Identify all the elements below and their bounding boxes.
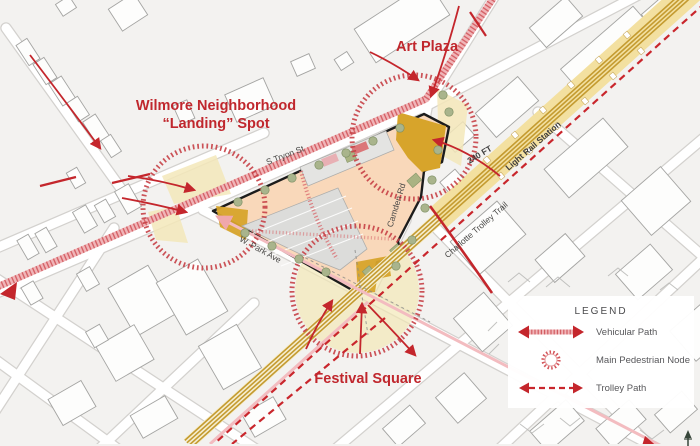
legend-item-vehicular: Vehicular Path: [516, 319, 694, 345]
legend-title: LEGEND: [508, 306, 694, 317]
legend-label-pedestrian-node: Main Pedestrian Node: [596, 355, 690, 366]
legend: LEGEND Vehicular Path Main Pedestrian No…: [508, 296, 694, 408]
trolley-path-icon: [516, 378, 586, 398]
legend-label-vehicular: Vehicular Path: [596, 327, 657, 338]
legend-label-trolley: Trolley Path: [596, 383, 646, 394]
label-wilmore-line2: “Landing” Spot: [162, 116, 269, 132]
label-art-plaza: Art Plaza: [396, 39, 459, 55]
legend-item-pedestrian-node: Main Pedestrian Node: [516, 347, 694, 373]
legend-item-trolley: Trolley Path: [516, 375, 694, 401]
label-festival-square: Festival Square: [314, 371, 421, 387]
vehicular-path-icon: [516, 322, 586, 342]
pedestrian-node-icon: [516, 350, 586, 370]
label-wilmore-line1: Wilmore Neighborhood: [136, 98, 296, 114]
